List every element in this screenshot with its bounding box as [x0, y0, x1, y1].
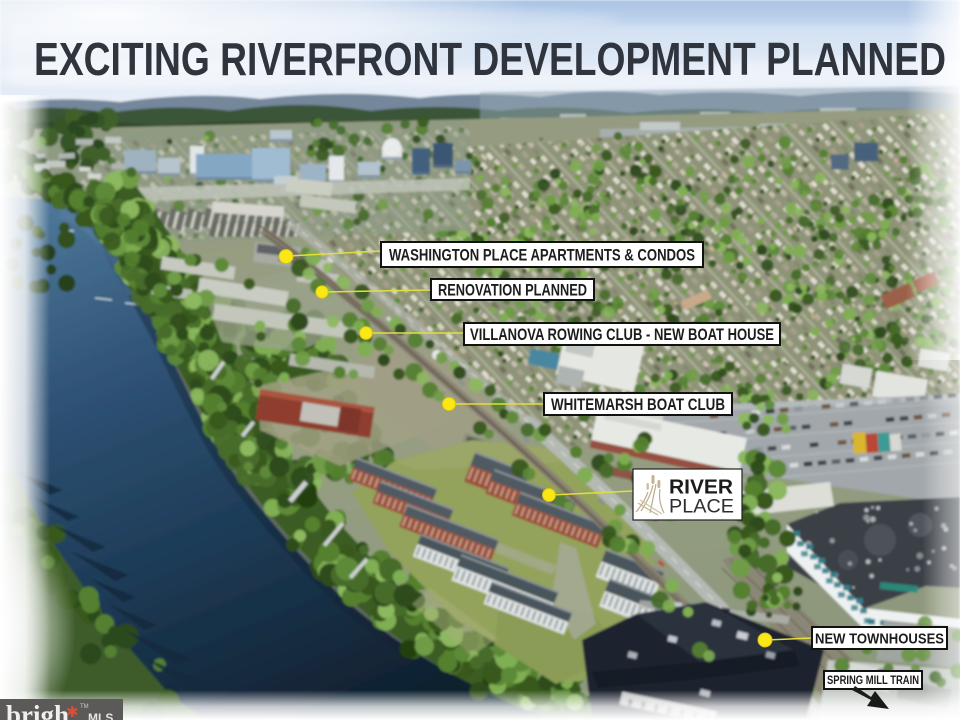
- svg-text:WASHINGTON PLACE APARTMENTS &: WASHINGTON PLACE APARTMENTS & CONDOS: [389, 246, 695, 264]
- svg-text:VILLANOVA ROWING CLUB - NEW BO: VILLANOVA ROWING CLUB - NEW BOAT HOUSE: [470, 326, 774, 344]
- svg-text:EXCITING RIVERFRONT DEVELOPMEN: EXCITING RIVERFRONT DEVELOPMENT PLANNED: [34, 33, 946, 85]
- svg-text:NEW TOWNHOUSES: NEW TOWNHOUSES: [815, 630, 944, 647]
- svg-text:RENOVATION PLANNED: RENOVATION PLANNED: [438, 281, 587, 299]
- svg-text:TM: TM: [80, 704, 89, 710]
- svg-text:MLS: MLS: [88, 711, 113, 720]
- svg-text:WHITEMARSH BOAT CLUB: WHITEMARSH BOAT CLUB: [551, 396, 725, 414]
- svg-text:✱: ✱: [66, 704, 79, 720]
- svg-text:SPRING MILL TRAIN: SPRING MILL TRAIN: [827, 675, 919, 687]
- svg-text:PLACE: PLACE: [669, 496, 734, 518]
- svg-text:brigh: brigh: [6, 700, 69, 720]
